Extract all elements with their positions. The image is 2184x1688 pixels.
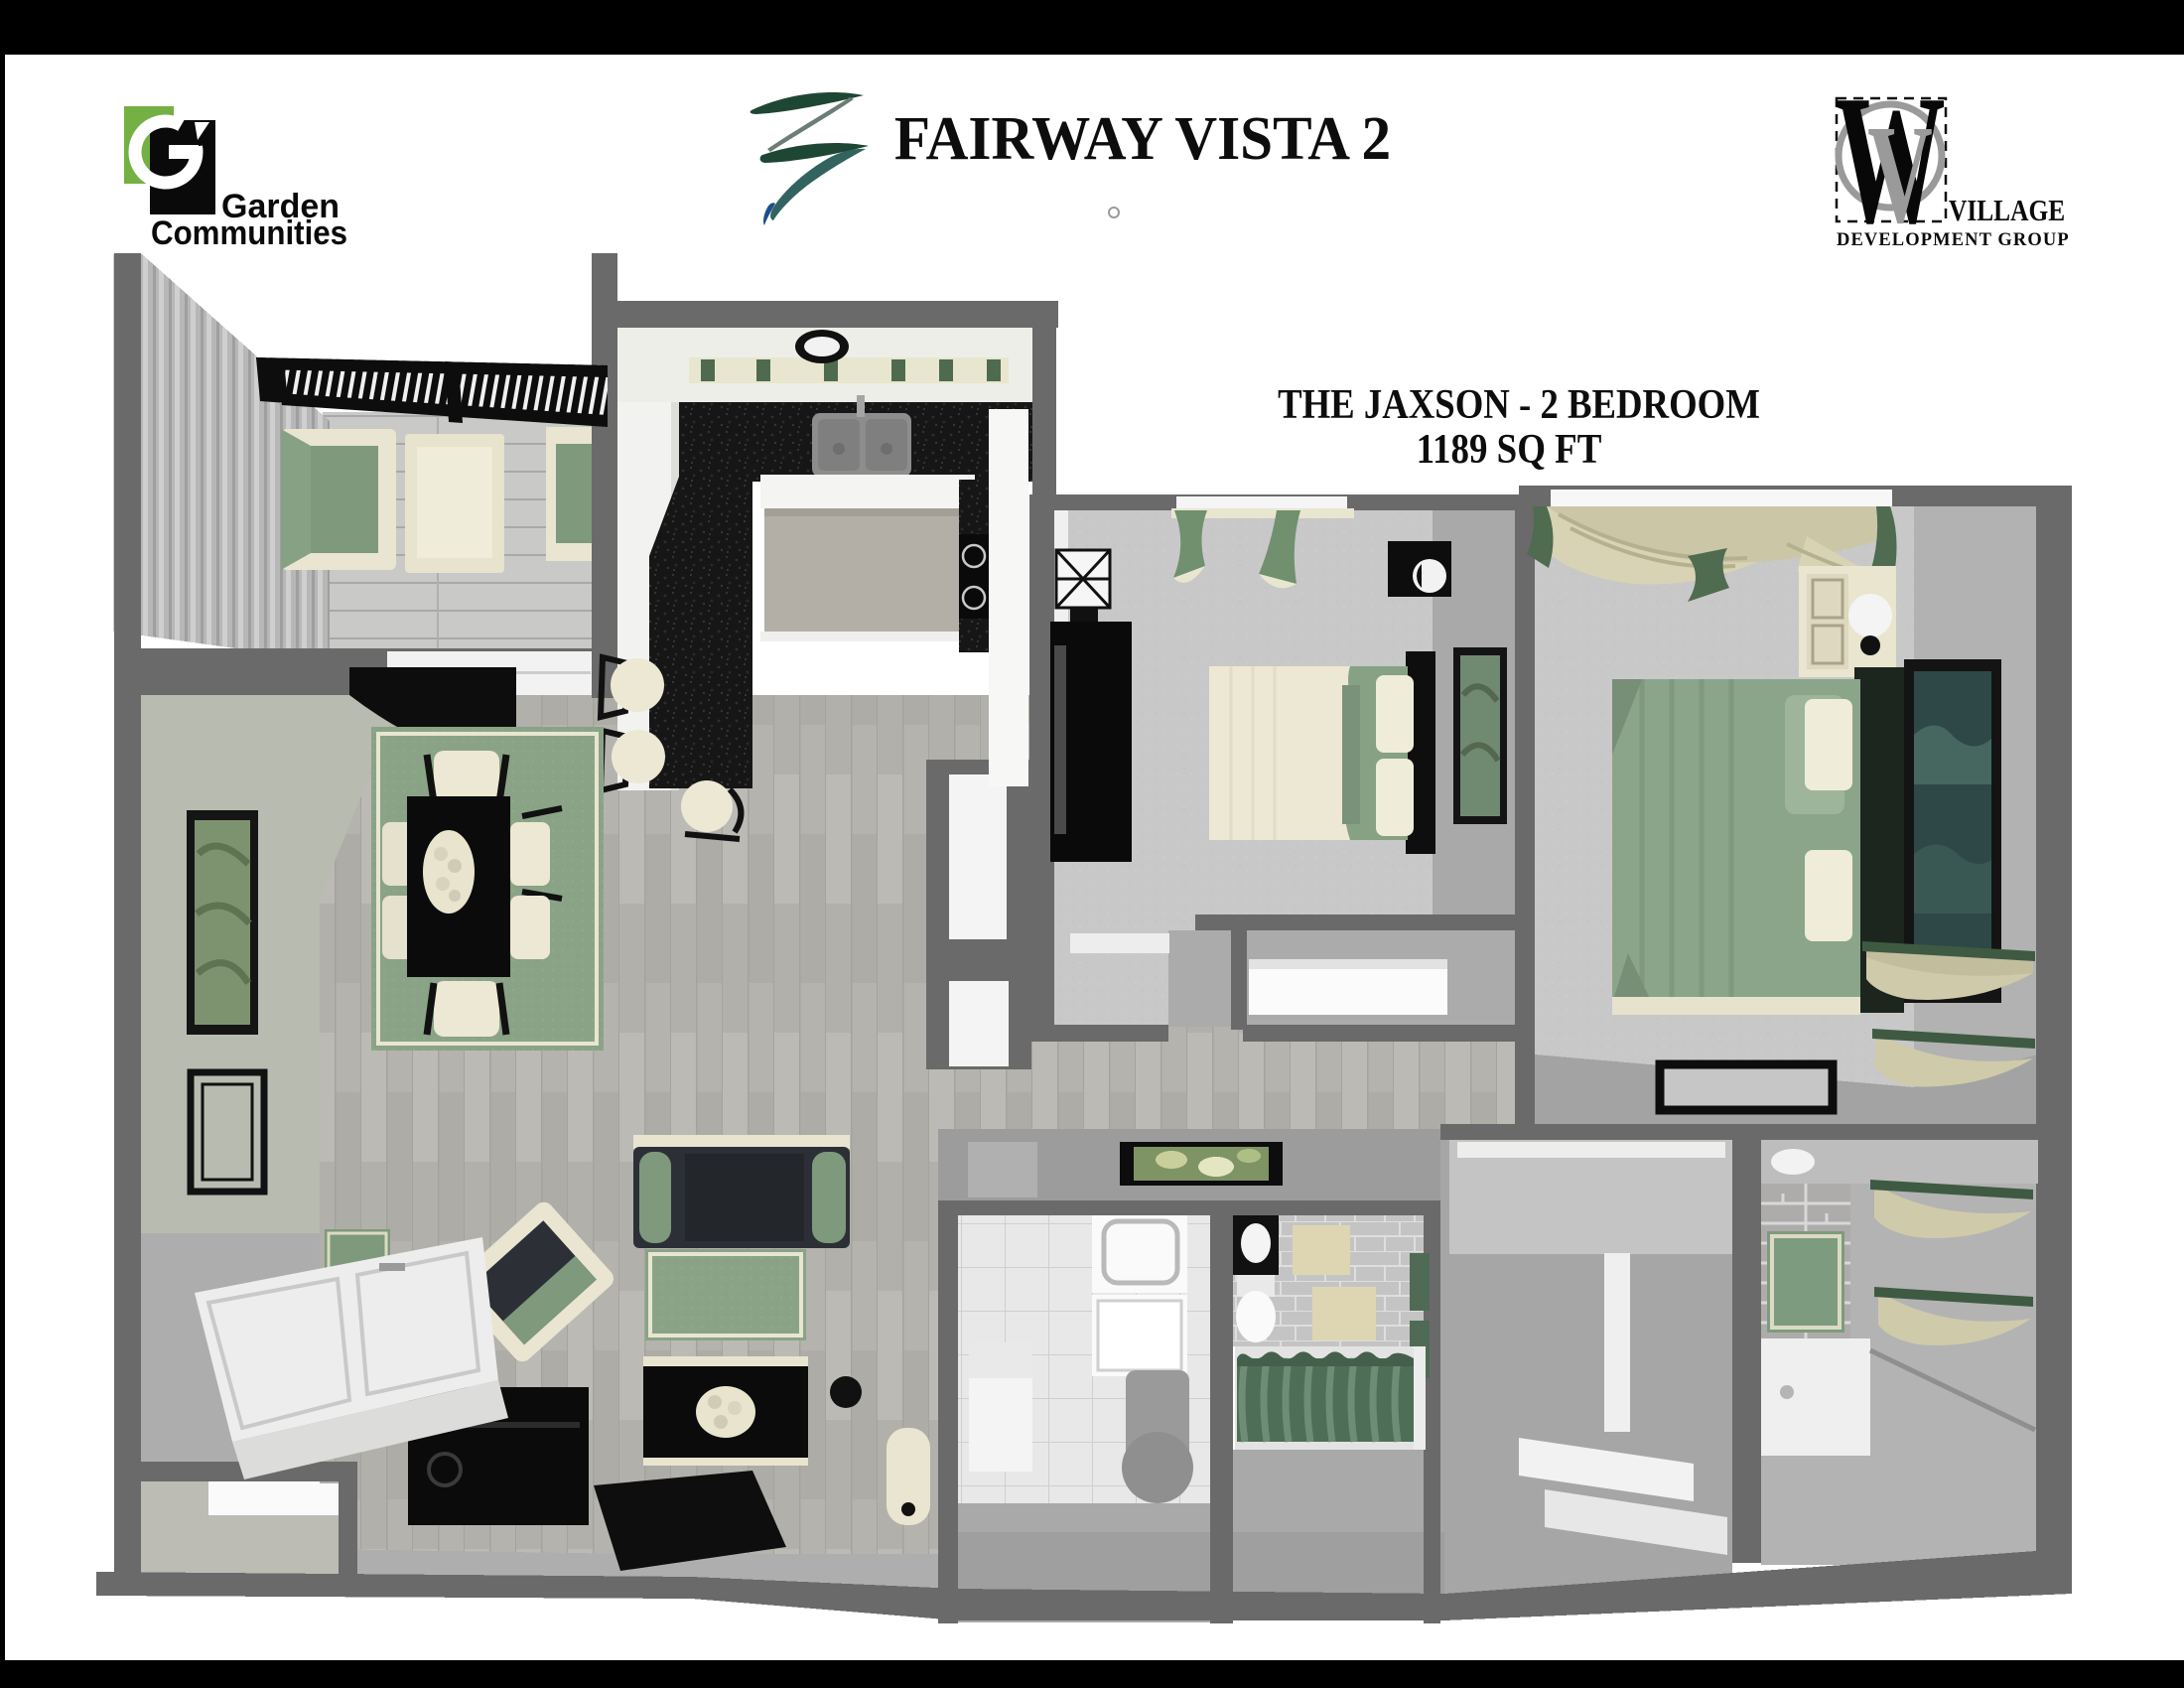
svg-text:V: V <box>1867 96 1933 252</box>
svg-text:1189 SQ FT: 1189 SQ FT <box>1417 426 1602 473</box>
svg-text:VILLAGE: VILLAGE <box>1949 195 2065 228</box>
svg-text:Communities: Communities <box>151 213 347 252</box>
svg-text:DEVELOPMENT GROUP: DEVELOPMENT GROUP <box>1837 230 2070 250</box>
svg-text:THE JAXSON - 2 BEDROOM: THE JAXSON - 2 BEDROOM <box>1278 381 1760 428</box>
svg-text:FAIRWAY VISTA 2: FAIRWAY VISTA 2 <box>894 104 1391 173</box>
